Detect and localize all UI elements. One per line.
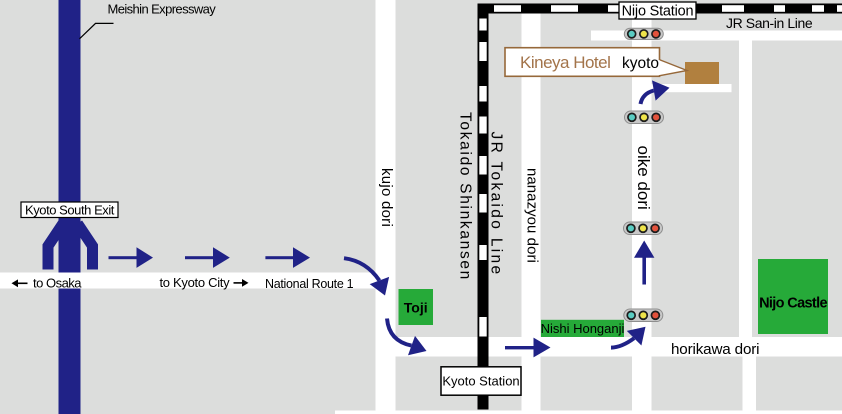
svg-text:kujo dori: kujo dori: [378, 168, 395, 227]
svg-text:JR Tokaido Line: JR Tokaido Line: [488, 132, 505, 277]
svg-text:horikawa dori: horikawa dori: [671, 341, 759, 358]
svg-text:Kyoto Station: Kyoto Station: [442, 374, 519, 389]
svg-text:Tokaido Shinkansen: Tokaido Shinkansen: [457, 112, 474, 281]
svg-text:Toji: Toji: [404, 299, 428, 315]
svg-text:Kyoto South Exit: Kyoto South Exit: [25, 202, 115, 217]
svg-text:nanazyou dori: nanazyou dori: [524, 168, 541, 263]
svg-text:to Kyoto City: to Kyoto City: [160, 275, 231, 290]
svg-text:Kineya Hotel: Kineya Hotel: [520, 53, 610, 72]
svg-text:to Osaka: to Osaka: [33, 275, 82, 290]
svg-text:Nijo Castle: Nijo Castle: [759, 296, 827, 312]
svg-text:Nijo Station: Nijo Station: [622, 3, 694, 19]
svg-text:Nishi Honganji: Nishi Honganji: [541, 321, 625, 336]
svg-text:kyoto: kyoto: [622, 55, 659, 72]
svg-text:oike dori: oike dori: [634, 146, 653, 210]
svg-text:JR San-in Line: JR San-in Line: [726, 15, 813, 31]
svg-text:Meishin Expressway: Meishin Expressway: [108, 2, 217, 17]
svg-text:National Route 1: National Route 1: [265, 277, 354, 291]
